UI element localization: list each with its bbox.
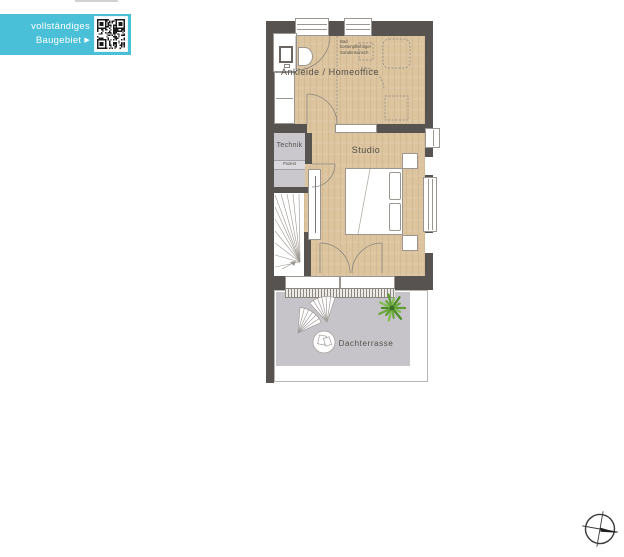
room-label-studio: Studio — [346, 145, 386, 155]
nightstand — [402, 235, 418, 251]
wall-glass-panel — [335, 124, 377, 133]
wall-segment — [274, 276, 285, 290]
window — [344, 18, 372, 36]
room-label-dachterrasse: Dachterrasse — [326, 339, 406, 348]
window — [295, 18, 329, 36]
floor-plan: Ankleide / Homeoffice Bad kostenpflichti… — [266, 17, 433, 383]
room-label-technik: Technik — [274, 142, 305, 149]
banner-label: vollständiges Baugebiet ▶ — [0, 20, 90, 50]
pillow — [389, 172, 401, 200]
page-edge-line — [75, 0, 118, 2]
wall-niche — [425, 157, 433, 175]
wall-segment — [395, 276, 433, 290]
wall-niche — [425, 233, 433, 253]
page: vollständiges Baugebiet ▶ — [0, 0, 624, 557]
baugebiet-banner[interactable]: vollständiges Baugebiet ▶ — [0, 14, 131, 55]
pillow — [389, 203, 401, 231]
window — [423, 177, 437, 232]
door-sill-hatch — [285, 288, 395, 298]
room-label-ankleide: Ankleide / Homeoffice — [280, 67, 380, 77]
wardrobe — [308, 169, 321, 240]
bad-note: Bad kostenpflichtiger Sonderwunsch — [340, 39, 371, 55]
qr-code[interactable] — [94, 16, 128, 52]
monitor — [279, 46, 293, 63]
room-label-podest: Podest — [274, 161, 305, 166]
nightstand — [402, 153, 418, 169]
north-arrow-icon — [580, 509, 620, 549]
window — [425, 128, 440, 148]
terrace-floor — [276, 292, 410, 366]
wall-segment — [266, 21, 274, 383]
wall-segment — [274, 124, 307, 133]
wall-segment — [274, 187, 312, 193]
shelf-cabinet — [274, 72, 295, 124]
wall-segment — [377, 124, 425, 133]
play-arrow-icon: ▶ — [84, 37, 90, 44]
staircase-area — [274, 193, 304, 276]
wall-segment — [305, 133, 312, 164]
